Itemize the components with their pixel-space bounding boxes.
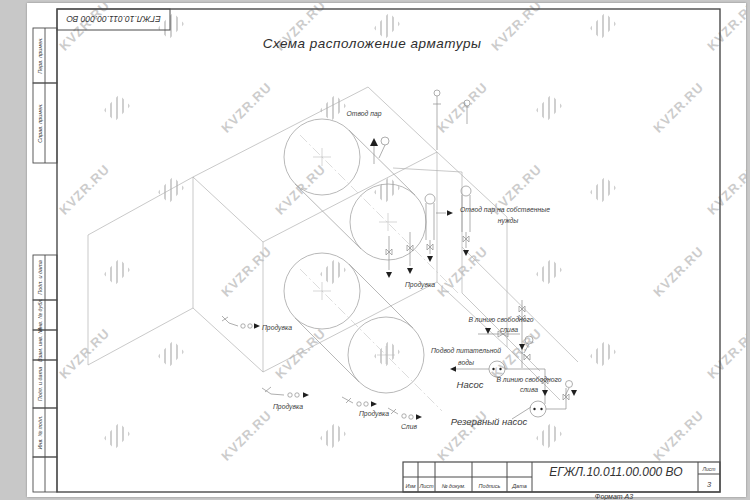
safety-valve-stack-icon [425, 186, 471, 254]
blowdown-valve-icon [342, 397, 368, 406]
margin-label: Справ. примен. [37, 103, 43, 143]
label-blowdown: Продувка [359, 410, 389, 418]
drawing-sheet-page: KVZR.RUKVZR.RUKVZR.RUKVZR.RUKVZR.RUKVZR.… [0, 0, 750, 500]
margin-label: Инв. № подл. [37, 415, 43, 449]
margin-label: Перв. примен. [37, 37, 43, 74]
label-steam-own-1: Отвод пар на собственные [460, 206, 550, 214]
centerlines [300, 135, 458, 411]
piping [222, 90, 573, 419]
label-blowdown: Продувка [273, 403, 303, 411]
pump-icon [489, 361, 505, 377]
sheet-label: Лист [702, 466, 716, 472]
blowdown-valve-icon [222, 316, 252, 328]
blowdown-pipes-icon [386, 232, 413, 270]
label-free-drain-2: слива [500, 326, 518, 333]
label-free-drain-1: В линию свободного [468, 316, 533, 323]
support-structure-wireframe [88, 87, 578, 400]
arrow-right-icon [416, 414, 422, 420]
label-feedwater-1: Подвод питательной [431, 347, 501, 354]
arrow-down-icon [407, 268, 413, 274]
col-data: Дата [511, 483, 527, 489]
label-feedwater-2: воды [458, 359, 474, 366]
arrow-right-icon [303, 392, 309, 398]
blowdown-valve-icon [262, 387, 299, 397]
label-pump: Насос [457, 379, 484, 390]
arrow-up-icon [370, 138, 378, 146]
left-margin-labels: Перв. примен. Справ. примен. Подп. и дат… [37, 37, 43, 449]
drawing-title: Схема расположение арматуры [263, 36, 482, 51]
drawing-frame [33, 9, 720, 492]
arrow-down-icon [386, 272, 392, 278]
arrow-left-icon [450, 366, 456, 372]
label-blowdown: Продувка [405, 281, 435, 289]
col-podpis: Подпись [479, 483, 501, 489]
arrow-down-icon [519, 344, 525, 350]
drain-valve-icon [388, 408, 413, 419]
title-block-texts: Изм Лист № докум. Подпись Дата ЕГЖЛ.10.0… [405, 465, 715, 500]
margin-label: Подп. и дата [37, 260, 43, 294]
tank-vessels [284, 119, 458, 411]
label-free-drain-2: слива [520, 386, 538, 393]
sheet-value: 3 [707, 480, 712, 489]
arrow-right-icon [371, 401, 377, 407]
label-blowdown: Продувка [262, 324, 292, 332]
arrow-right-icon [254, 323, 260, 329]
col-dokum: № докум. [441, 483, 465, 489]
label-free-drain-1: В линию свободного [496, 376, 561, 383]
label-reserve-pump: Резервный насос [451, 416, 528, 427]
center-crosses [313, 148, 397, 364]
margin-label: Взам. инв. № [37, 328, 43, 362]
drawing-canvas: ЕГЖЛ.10.011.00.000 ВО Перв. примен. Спра… [0, 0, 750, 500]
label-drain: Слив [401, 423, 418, 430]
arrow-down-icon [542, 390, 548, 396]
arrow-down-icon [427, 256, 433, 262]
vent-fitting-icon [433, 90, 470, 150]
col-izm: Изм [405, 483, 415, 489]
col-list: Лист [418, 483, 434, 489]
arrow-right-icon [447, 210, 453, 216]
designation: ЕГЖЛ.10.011.00.000 ВО [549, 465, 682, 479]
label-steam-out: Отвод пар [346, 110, 381, 118]
margin-label: Инв. № дубл. [37, 298, 43, 332]
top-stamp-designation: ЕГЖЛ.10.011.00.000 ВО [66, 14, 161, 24]
steam-outlet-valve-icon [374, 137, 389, 164]
arrow-down-icon [571, 390, 577, 396]
margin-label: Подп. и дата [37, 367, 43, 401]
format-note: Формат А3 [595, 493, 633, 500]
label-steam-own-2: нужды [498, 217, 519, 225]
